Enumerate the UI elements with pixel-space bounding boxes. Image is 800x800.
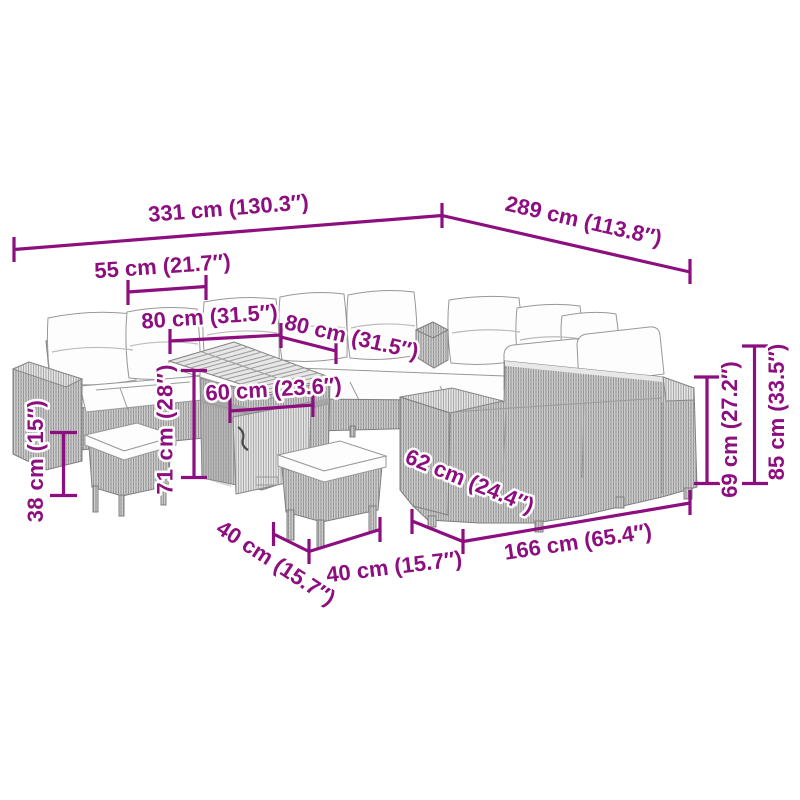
svg-text:166 cm (65.4″): 166 cm (65.4″) [503, 518, 654, 564]
svg-text:40 cm (15.7″): 40 cm (15.7″) [325, 546, 464, 587]
svg-text:69 cm (27.2″): 69 cm (27.2″) [717, 361, 742, 498]
svg-text:331 cm (130.3″): 331 cm (130.3″) [147, 189, 309, 227]
svg-text:71 cm (28″): 71 cm (28″) [153, 363, 178, 494]
svg-text:38 cm (15″): 38 cm (15″) [23, 400, 48, 523]
svg-text:55 cm (21.7″): 55 cm (21.7″) [94, 249, 232, 283]
svg-text:289 cm (113.8″): 289 cm (113.8″) [503, 191, 664, 251]
svg-text:85 cm (33.5″): 85 cm (33.5″) [764, 344, 789, 481]
